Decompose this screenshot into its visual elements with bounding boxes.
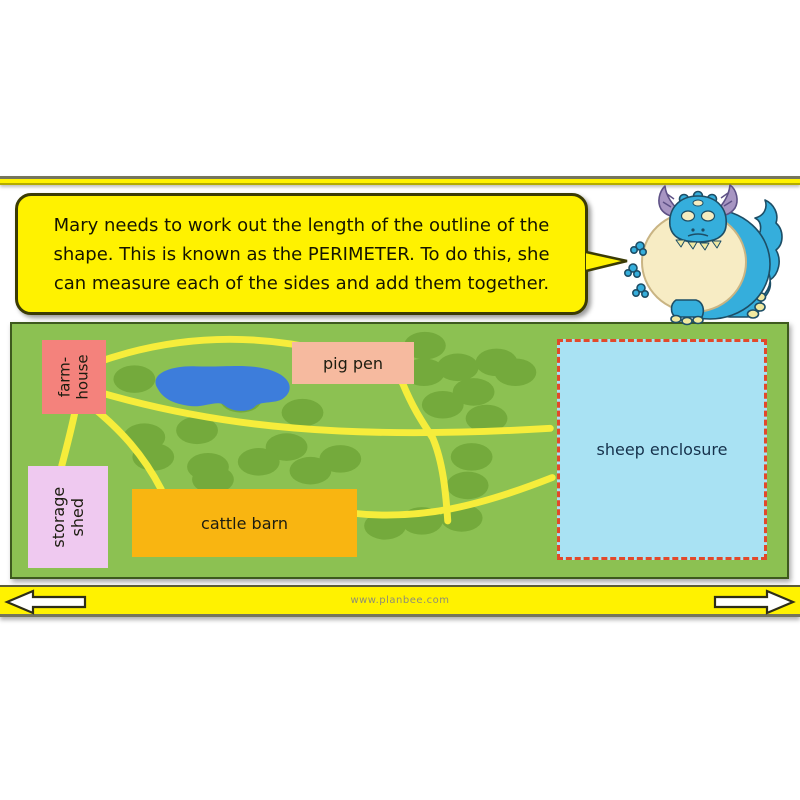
storage-shed-label-line2: shed <box>68 498 87 536</box>
next-arrow-icon[interactable] <box>707 588 797 616</box>
speech-line-1: Mary needs to work out the length of the… <box>54 211 550 240</box>
speech-bubble: Mary needs to work out the length of the… <box>15 193 588 315</box>
farmhouse-label-line2: house <box>74 354 92 399</box>
navigation-bar: www.planbee.com <box>0 585 800 617</box>
slide-canvas: Mary needs to work out the length of the… <box>0 0 800 800</box>
farm-map: farm- house storage shed pig pen cattle … <box>10 322 789 579</box>
pig-pen-label: pig pen <box>292 342 414 384</box>
cattle-barn-label: cattle barn <box>132 489 357 557</box>
speech-line-3: can measure each of the sides and add th… <box>54 269 549 298</box>
storage-shed-label-line1: storage <box>49 487 68 548</box>
sheep-enclosure-label-text: sheep enclosure <box>597 440 728 459</box>
prev-arrow-icon[interactable] <box>3 588 93 616</box>
cattle-barn-label-text: cattle barn <box>201 514 288 533</box>
farmhouse-label-line1: farm- <box>56 357 74 397</box>
storage-shed-label: storage shed <box>28 466 108 568</box>
sheep-enclosure: sheep enclosure <box>557 339 767 560</box>
pig-pen-label-text: pig pen <box>323 354 383 373</box>
website-link: www.planbee.com <box>350 595 449 606</box>
speech-line-2: shape. This is known as the PERIMETER. T… <box>53 240 549 269</box>
dragon-mascot <box>618 182 798 328</box>
farmhouse-label: farm- house <box>42 340 106 414</box>
